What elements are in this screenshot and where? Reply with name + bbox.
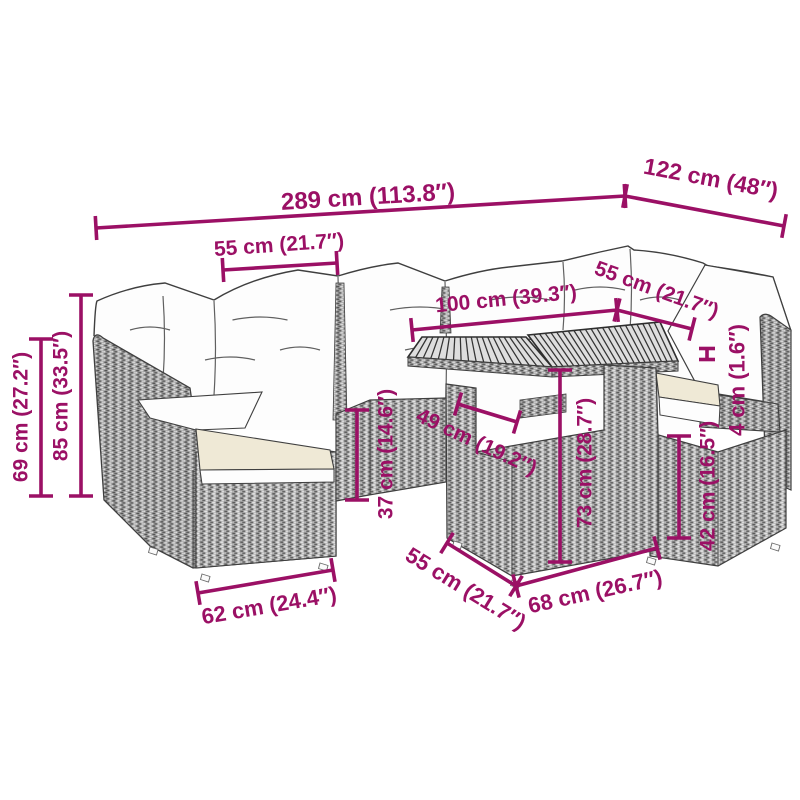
svg-text:42 cm (16.5″): 42 cm (16.5″): [697, 421, 720, 551]
svg-text:69 cm (27.2″): 69 cm (27.2″): [10, 352, 33, 482]
svg-text:68 cm (26.7″): 68 cm (26.7″): [526, 565, 665, 619]
svg-text:73 cm (28.7″): 73 cm (28.7″): [574, 398, 597, 528]
svg-text:85 cm (33.5″): 85 cm (33.5″): [50, 331, 73, 461]
svg-text:55 cm (21.7″): 55 cm (21.7″): [213, 229, 345, 261]
svg-text:4 cm (1.6″): 4 cm (1.6″): [725, 324, 750, 436]
svg-text:37 cm (14.6″): 37 cm (14.6″): [375, 389, 398, 519]
svg-text:122 cm (48″): 122 cm (48″): [642, 153, 781, 204]
svg-text:289 cm (113.8″): 289 cm (113.8″): [280, 178, 456, 216]
